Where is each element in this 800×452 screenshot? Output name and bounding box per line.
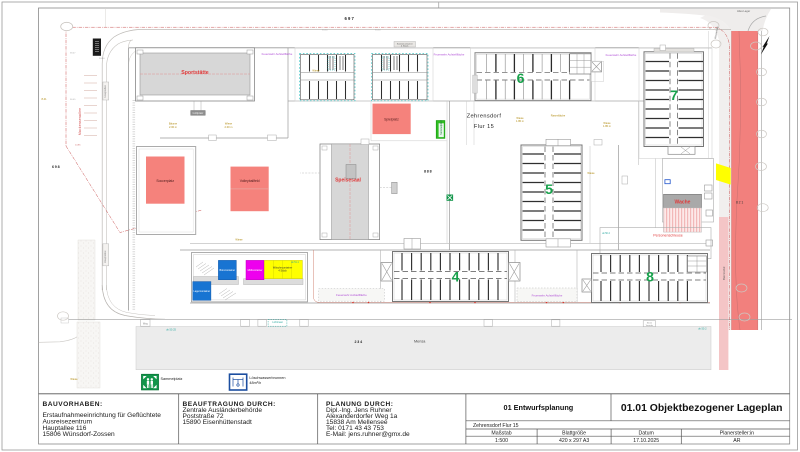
svg-text:Zehrensdorf: Zehrensdorf — [467, 114, 502, 120]
svg-text:01.01 Objektbezogener Lageplan: 01.01 Objektbezogener Lageplan — [621, 403, 783, 414]
svg-text:Verteiler: Verteiler — [646, 324, 654, 327]
svg-text:2.00 m: 2.00 m — [225, 125, 233, 129]
svg-text:15806 Wünsdorf-Zossen: 15806 Wünsdorf-Zossen — [43, 431, 116, 438]
svg-text:4: 4 — [452, 269, 460, 285]
svg-text:Lichtmast: Lichtmast — [272, 321, 283, 324]
svg-text:Feuerwehr Aufstellfläche: Feuerwehr Aufstellfläche — [606, 53, 637, 57]
svg-text:58.47: 58.47 — [70, 53, 76, 55]
svg-text:uk 50.2: uk 50.2 — [698, 327, 707, 331]
svg-text:Grillplatz: Grillplatz — [193, 111, 204, 115]
svg-text:Altes Lager: Altes Lager — [737, 9, 750, 13]
svg-text:821: 821 — [736, 201, 744, 205]
svg-text:2.00 m: 2.00 m — [169, 125, 177, 129]
svg-text:Feuerwehr Aufstellfläche: Feuerwehr Aufstellfläche — [262, 52, 293, 56]
svg-text:Feuerwehr Aufstellfläche: Feuerwehr Aufstellfläche — [532, 294, 563, 298]
svg-text:Feuerwehr Aufstellfläche: Feuerwehr Aufstellfläche — [434, 53, 465, 57]
svg-text:Volleyballfeld: Volleyballfeld — [240, 179, 260, 183]
svg-text:Planersteller:in: Planersteller:in — [720, 431, 754, 437]
svg-text:E-Mail: jens.ruhner@gmx.de: E-Mail: jens.ruhner@gmx.de — [326, 431, 410, 438]
svg-text:Datum: Datum — [639, 431, 654, 437]
svg-text:8.41: 8.41 — [41, 97, 47, 101]
svg-text:Wiese: Wiese — [70, 377, 78, 381]
svg-text:15890 Eisenhüttenstadt: 15890 Eisenhüttenstadt — [183, 419, 252, 426]
svg-text:Soccerplatz: Soccerplatz — [156, 179, 174, 183]
svg-text:48m³/h: 48m³/h — [249, 381, 261, 385]
svg-text:1.80 m: 1.80 m — [603, 124, 611, 128]
svg-text:Wiese: Wiese — [235, 238, 243, 242]
svg-text:4 Stück: 4 Stück — [401, 45, 409, 48]
svg-text:Blattgröße: Blattgröße — [562, 431, 586, 437]
svg-text:Zehrensdorf Flur 15: Zehrensdorf Flur 15 — [473, 423, 519, 429]
svg-text:697: 697 — [345, 16, 356, 21]
svg-text:8: 8 — [646, 269, 654, 285]
svg-text:1:500: 1:500 — [495, 438, 508, 444]
svg-text:Hauptallee: Hauptallee — [103, 250, 107, 263]
svg-text:888: 888 — [424, 170, 432, 174]
svg-text:4 Stück: 4 Stück — [278, 270, 287, 273]
svg-text:14.85: 14.85 — [75, 145, 81, 147]
svg-text:Flur 15: Flur 15 — [474, 124, 494, 130]
svg-text:Rasenfläche: Rasenfläche — [551, 114, 566, 118]
svg-text:Maßstab: Maßstab — [491, 431, 511, 437]
svg-text:Hauptallee: Hauptallee — [103, 85, 107, 98]
svg-text:Wache: Wache — [675, 200, 691, 206]
svg-text:Weg: Weg — [143, 322, 149, 325]
svg-text:1.80 m: 1.80 m — [516, 119, 524, 123]
svg-text:94.30: 94.30 — [322, 29, 328, 31]
svg-text:Feuerwehr Aufstellfläche: Feuerwehr Aufstellfläche — [336, 293, 367, 297]
svg-text:56.45: 56.45 — [70, 99, 76, 101]
svg-text:Sportstätte: Sportstätte — [181, 70, 208, 76]
svg-text:uk 51.1: uk 51.1 — [291, 261, 300, 264]
svg-text:Sammelplatz: Sammelplatz — [161, 377, 183, 381]
svg-text:uk 50.4: uk 50.4 — [602, 232, 611, 235]
svg-text:Personenschleuse: Personenschleuse — [653, 234, 683, 238]
svg-text:234: 234 — [355, 340, 363, 344]
svg-text:Bürocontainer: Bürocontainer — [220, 269, 236, 272]
svg-text:BAUVORHABEN:: BAUVORHABEN: — [43, 401, 103, 408]
svg-text:420 x 297 A3: 420 x 297 A3 — [559, 438, 589, 444]
svg-text:Spielplatz: Spielplatz — [384, 118, 399, 122]
svg-text:AR: AR — [733, 438, 740, 444]
svg-text:01 Entwurfsplanung: 01 Entwurfsplanung — [504, 403, 574, 412]
svg-text:94.30: 94.30 — [375, 29, 381, 31]
svg-text:6: 6 — [517, 70, 525, 86]
svg-text:Löschwasserbrunnen: Löschwasserbrunnen — [249, 376, 285, 380]
svg-text:698: 698 — [52, 165, 60, 169]
svg-text:uk 50.25: uk 50.25 — [166, 328, 177, 332]
svg-text:Mensa: Mensa — [414, 340, 426, 344]
svg-text:17.10.2025: 17.10.2025 — [633, 438, 659, 444]
svg-text:5: 5 — [545, 181, 553, 197]
svg-text:Wiese: Wiese — [587, 171, 595, 175]
svg-text:Müllcontainer: Müllcontainer — [248, 269, 263, 272]
svg-text:Wiese: Wiese — [312, 69, 320, 73]
svg-text:7: 7 — [670, 87, 678, 103]
svg-text:Mackensenallee: Mackensenallee — [78, 108, 82, 135]
svg-text:14.80: 14.80 — [99, 58, 105, 60]
svg-text:Lagercontainer: Lagercontainer — [193, 290, 210, 293]
svg-text:Bahnhofstr.: Bahnhofstr. — [722, 266, 726, 280]
svg-text:Sammelplatz: Sammelplatz — [439, 119, 443, 135]
